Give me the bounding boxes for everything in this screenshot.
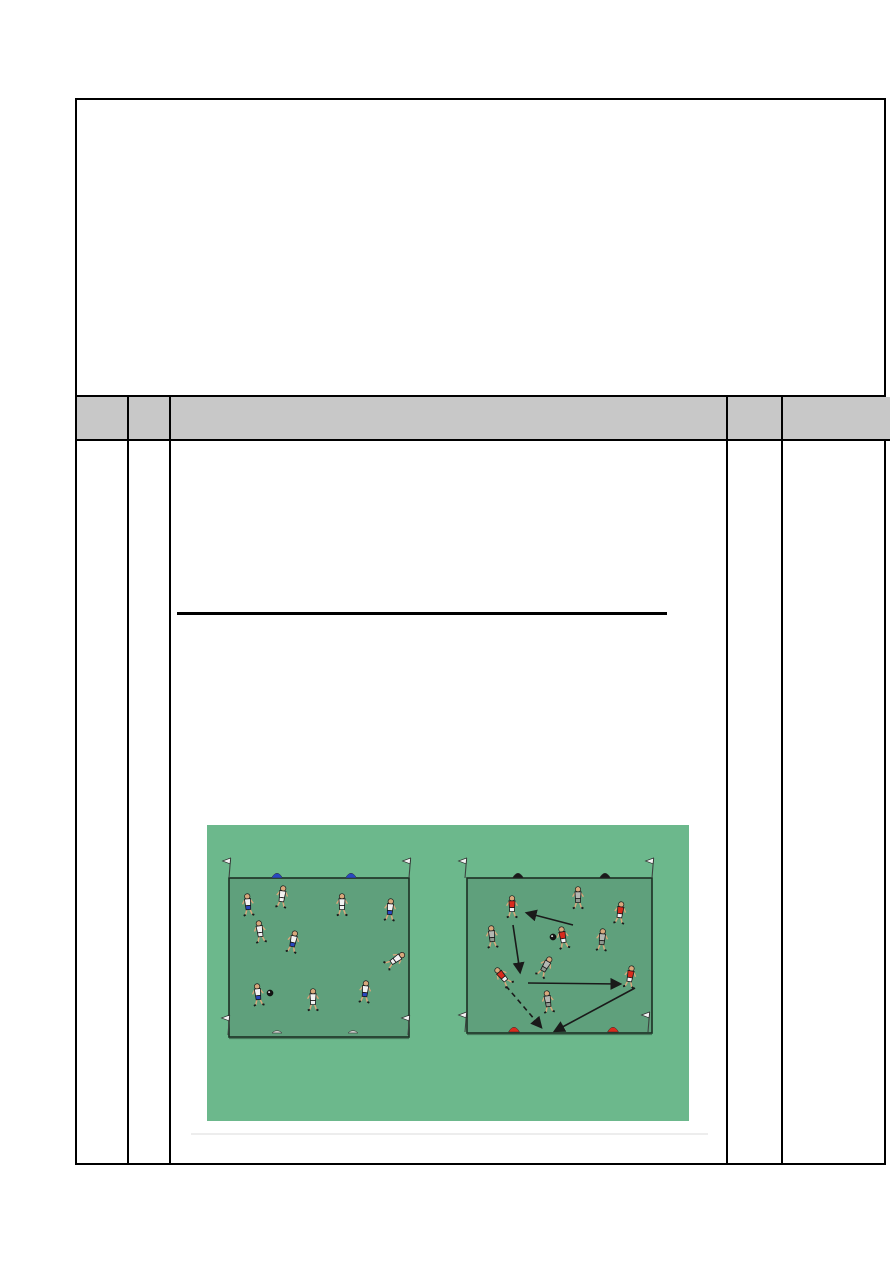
body-cell-4: [728, 441, 783, 1163]
soccer-ball: [267, 990, 273, 996]
body-cell-1: [77, 441, 129, 1163]
soccer-ball: [550, 934, 556, 940]
body-cell-5: [783, 441, 890, 1163]
header-cell-3: [171, 397, 728, 441]
top-empty-box: [75, 98, 886, 395]
header-cell-2: [129, 397, 171, 441]
left-pitch: [229, 878, 409, 1037]
body-cell-2: [129, 441, 171, 1163]
header-cell-1: [77, 397, 129, 441]
pass-arrow: [528, 983, 620, 984]
body-cell-main: [171, 441, 728, 1163]
blank-underlined-heading: [177, 612, 667, 615]
image-shadow-rule: [191, 1133, 708, 1135]
header-cell-4: [728, 397, 783, 441]
training-diagram-image: [207, 825, 689, 1121]
session-table: [75, 395, 886, 1165]
scanned-document-page: [0, 0, 893, 1263]
header-cell-5: [783, 397, 890, 441]
right-pitch: [467, 878, 652, 1033]
